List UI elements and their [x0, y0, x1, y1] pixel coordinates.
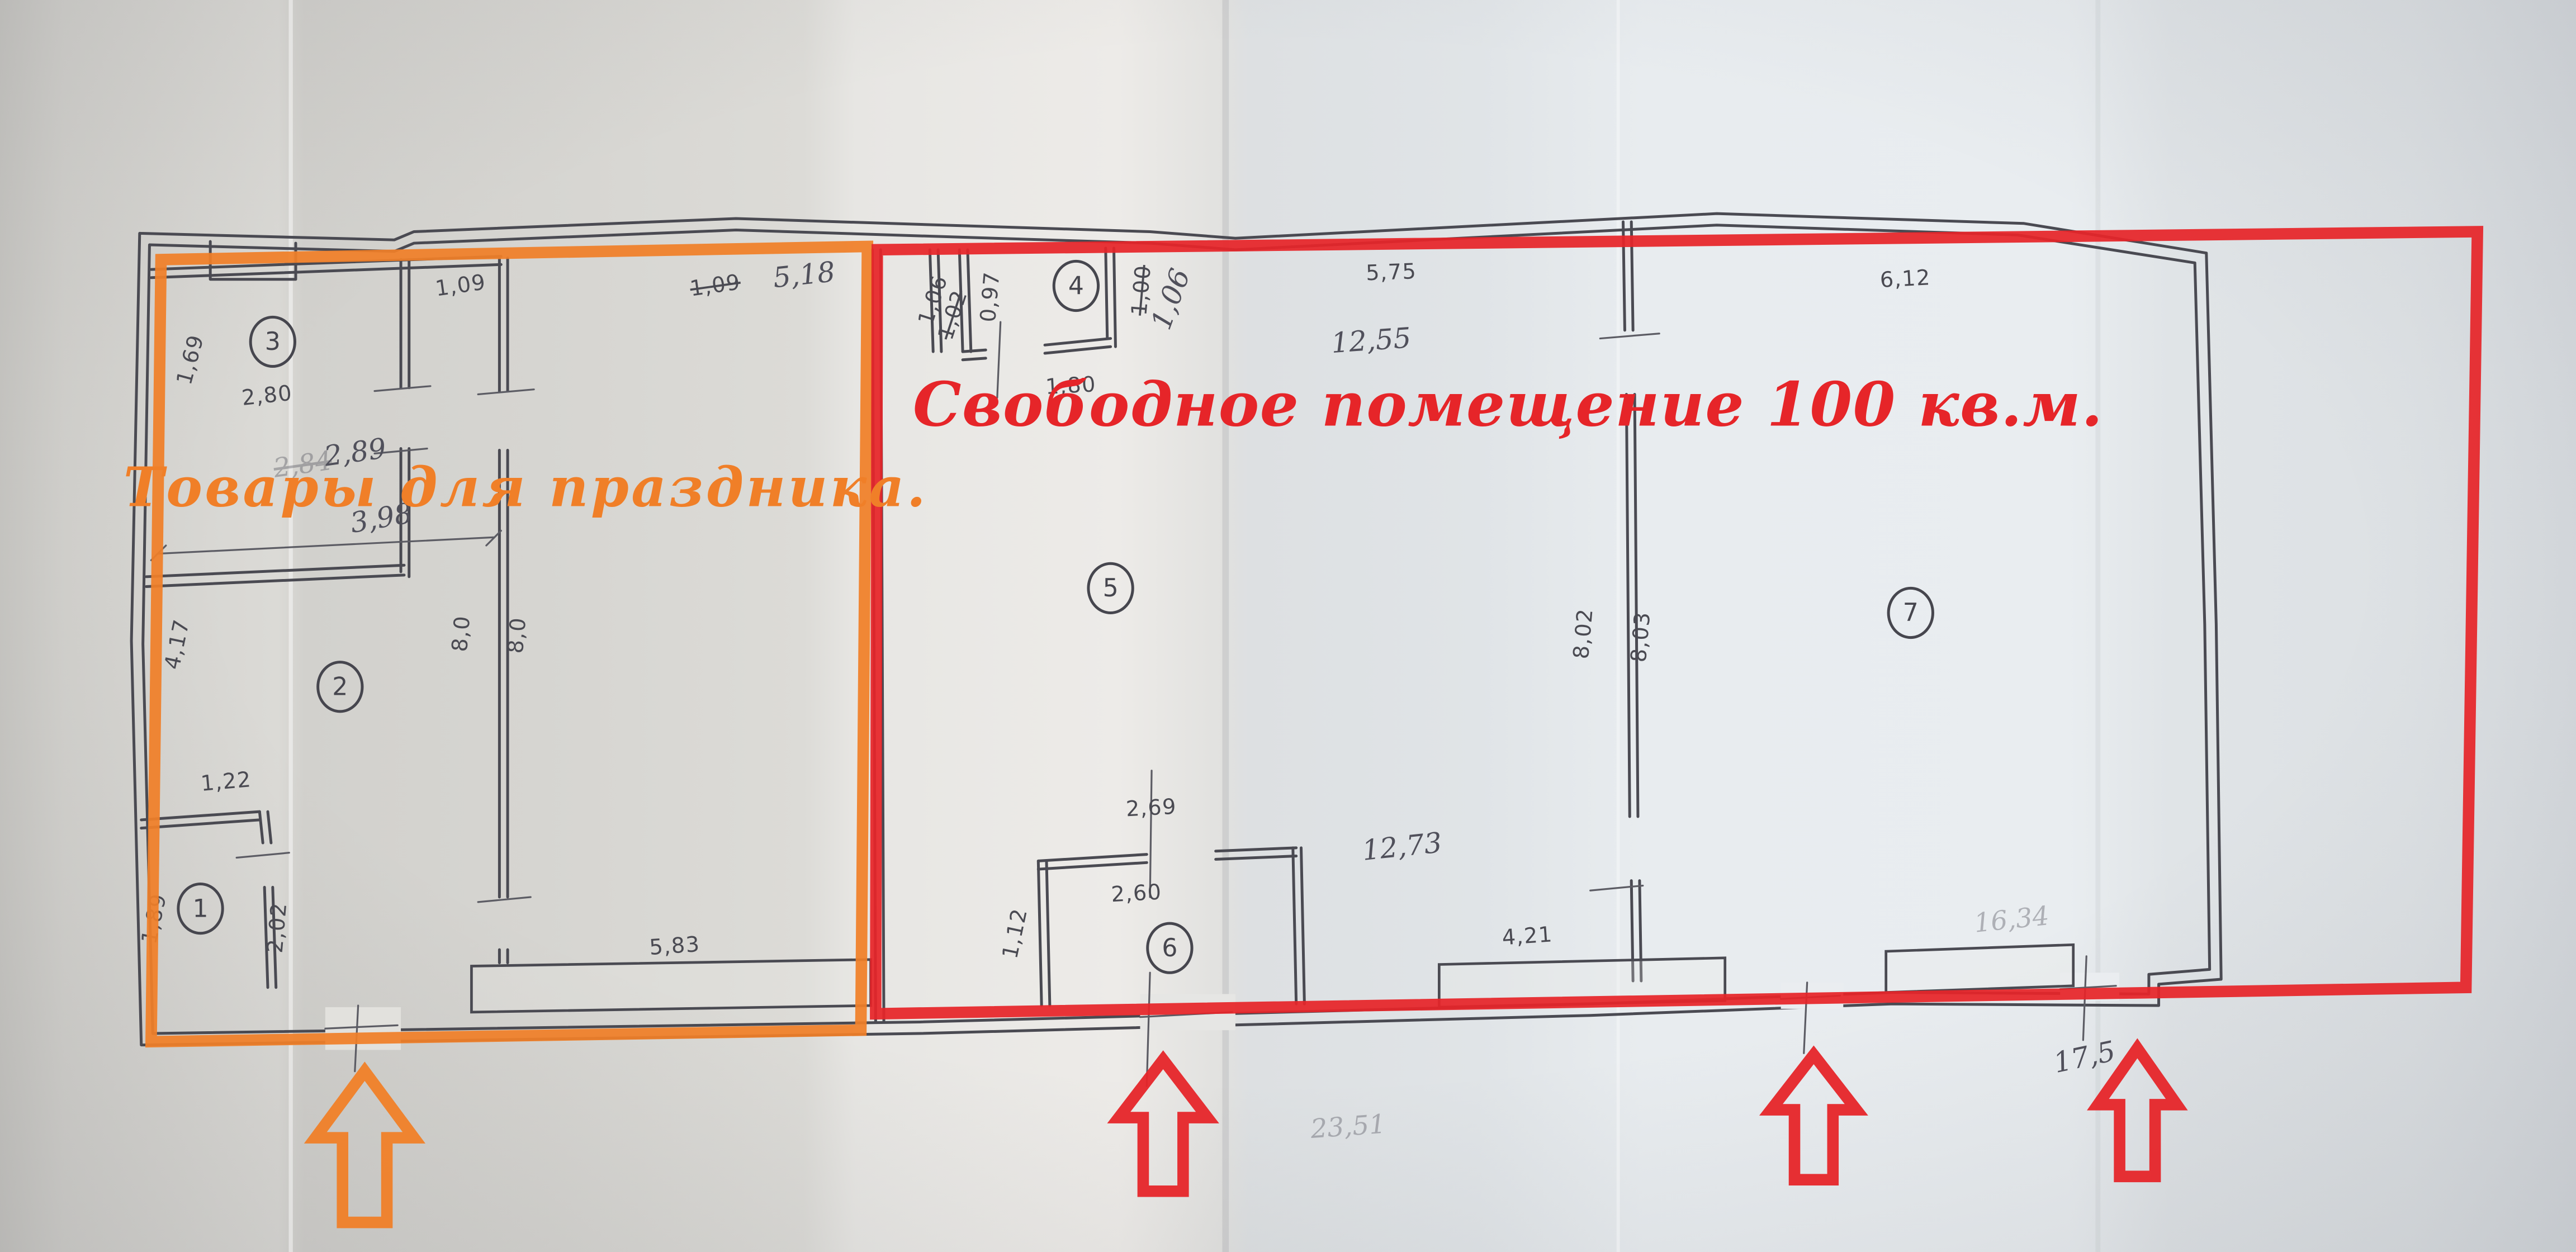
paper-vignette	[0, 0, 2576, 1252]
dimension-label: 23,51	[1309, 1109, 1387, 1145]
left-zone-label: Товары для праздника.	[124, 455, 928, 519]
dimension-label: 2,60	[1110, 880, 1162, 908]
svg-text:7: 7	[1903, 599, 1919, 627]
dimension-label: 5,18	[771, 255, 837, 294]
right-zone-label: Свободное помещение 100 кв.м.	[913, 368, 2103, 440]
dimension-label: 6,12	[1879, 265, 1931, 293]
dimension-label: 5,83	[648, 932, 701, 960]
dimension-label: 2,69	[1125, 795, 1177, 822]
svg-text:5: 5	[1103, 574, 1119, 603]
dimension-label: 12,55	[1330, 321, 1412, 359]
dimension-label: 8,0	[504, 616, 532, 655]
dimension-label: 4,21	[1501, 922, 1554, 950]
svg-text:3: 3	[265, 328, 281, 356]
floor-plan-photo: 3214567 1,692,801,092,842,893,984,171,22…	[0, 0, 2576, 1252]
dimension-label: 1,22	[200, 767, 252, 796]
dimension-label: 0,97	[976, 271, 1005, 323]
dimension-label: 2,02	[263, 902, 292, 954]
dimension-label: 8,03	[1627, 610, 1656, 663]
svg-text:6: 6	[1162, 934, 1177, 962]
svg-text:1: 1	[193, 894, 209, 923]
dimension-label: 8,0	[448, 614, 476, 653]
dimension-label: 2,80	[240, 381, 293, 411]
dimension-label: 5,75	[1366, 259, 1417, 286]
svg-text:4: 4	[1068, 272, 1084, 300]
dimension-label: 8,02	[1569, 607, 1598, 660]
svg-text:2: 2	[332, 672, 348, 701]
